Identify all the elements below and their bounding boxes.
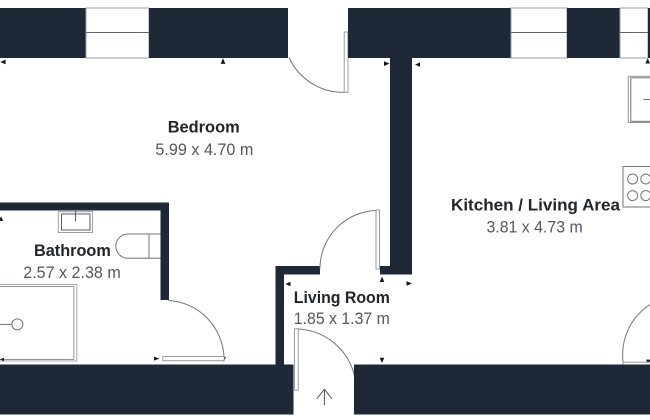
svg-text:1.85 x 1.37 m: 1.85 x 1.37 m (294, 309, 390, 328)
svg-text:5.99 x 4.70 m: 5.99 x 4.70 m (155, 140, 253, 159)
svg-text:3.81 x 4.73 m: 3.81 x 4.73 m (486, 217, 582, 236)
svg-text:2.57 x 2.38 m: 2.57 x 2.38 m (23, 263, 121, 282)
svg-text:Living Room: Living Room (294, 288, 390, 307)
svg-text:Kitchen / Living Area: Kitchen / Living Area (451, 196, 621, 215)
svg-text:Bedroom: Bedroom (168, 117, 240, 136)
svg-text:Bathroom: Bathroom (34, 241, 111, 260)
